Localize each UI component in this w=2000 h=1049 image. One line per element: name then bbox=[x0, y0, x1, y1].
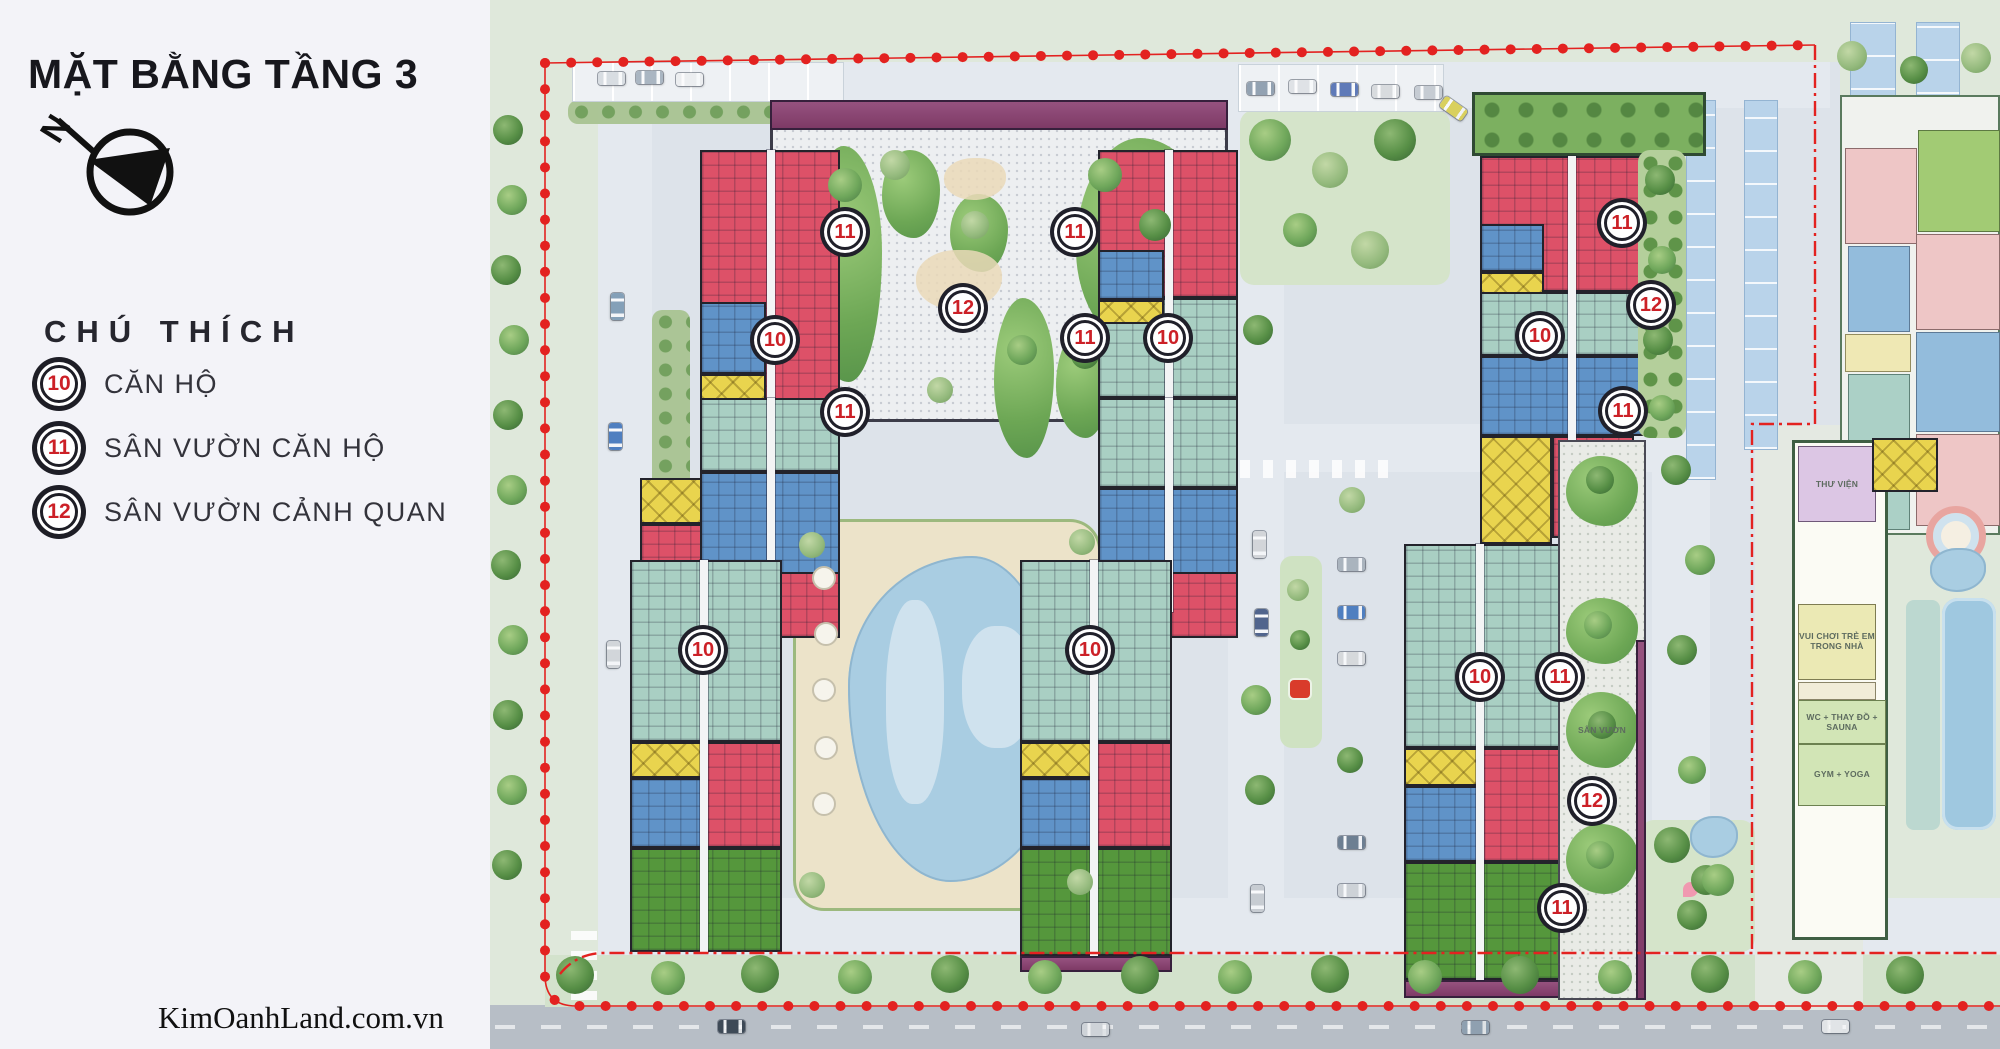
plan-yellow bwall bbox=[1404, 748, 1478, 786]
map-badge-10: 10 bbox=[1462, 659, 1498, 695]
tree bbox=[497, 775, 527, 805]
plan-yellow bwall bbox=[630, 742, 702, 778]
map-badge-11: 11 bbox=[1057, 214, 1093, 250]
plan-gband bbox=[1472, 92, 1706, 156]
legend: 10CĂN HỘ11SÂN VƯỜN CĂN HỘ12SÂN VƯỜN CẢNH… bbox=[30, 352, 447, 544]
car bbox=[611, 293, 624, 320]
plan-yellow bwall bbox=[1872, 438, 1938, 492]
tree bbox=[1678, 756, 1706, 784]
plan-p-yellow bbox=[1845, 334, 1911, 372]
car bbox=[1255, 609, 1268, 636]
tree bbox=[499, 325, 529, 355]
map-badge-10: 10 bbox=[1072, 632, 1108, 668]
car bbox=[1338, 558, 1365, 571]
tree bbox=[1598, 960, 1632, 994]
tree bbox=[1667, 635, 1697, 665]
car bbox=[1289, 80, 1316, 93]
umbrella bbox=[812, 792, 836, 816]
tree bbox=[1312, 152, 1348, 188]
tree bbox=[1007, 335, 1037, 365]
tree bbox=[1961, 43, 1991, 73]
tree bbox=[497, 475, 527, 505]
left-panel: MẶT BẰNG TẦNG 3 N CHÚ THÍCH 10CĂN HỘ11SÂ… bbox=[0, 0, 490, 1049]
tree bbox=[556, 956, 594, 994]
tree bbox=[838, 960, 872, 994]
tree bbox=[1121, 956, 1159, 994]
plan-lappool bbox=[1942, 598, 1996, 830]
tree bbox=[1069, 529, 1095, 555]
tree bbox=[1290, 630, 1310, 650]
tree bbox=[931, 955, 969, 993]
map-badge-11: 11 bbox=[1605, 393, 1641, 429]
tree bbox=[1886, 956, 1924, 994]
plan-bstall bbox=[1686, 100, 1716, 480]
tree bbox=[1643, 325, 1673, 355]
map-badge-11: 11 bbox=[1544, 890, 1580, 926]
tree bbox=[497, 185, 527, 215]
watermark: KimOanhLand.com.vn bbox=[158, 1000, 444, 1036]
map-badge-11: 11 bbox=[1604, 205, 1640, 241]
umbrella bbox=[812, 678, 836, 702]
plan-yellow bwall bbox=[640, 478, 702, 524]
plan-p-green bbox=[1918, 130, 2000, 232]
tree bbox=[1645, 165, 1675, 195]
tree bbox=[1283, 213, 1317, 247]
tree bbox=[1067, 869, 1093, 895]
plan-red bwall bbox=[706, 742, 782, 848]
car bbox=[1247, 82, 1274, 95]
tree bbox=[799, 872, 825, 898]
tree bbox=[961, 211, 989, 239]
tree bbox=[1900, 56, 1928, 84]
car bbox=[1253, 531, 1266, 558]
plan-p-pink bbox=[1916, 234, 2000, 330]
legend-item-label: SÂN VƯỜN CẢNH QUAN bbox=[104, 497, 447, 528]
site-plan-map bbox=[490, 0, 2000, 1049]
map-badge-10: 10 bbox=[1150, 320, 1186, 356]
north-letter: N bbox=[38, 108, 78, 149]
umbrella bbox=[814, 736, 838, 760]
tree bbox=[1661, 455, 1691, 485]
umbrella bbox=[812, 566, 836, 590]
plan-p-blue bbox=[1916, 332, 2000, 432]
tree bbox=[493, 400, 523, 430]
tree bbox=[1584, 611, 1612, 639]
map-badge-12: 12 bbox=[1574, 783, 1610, 819]
tree bbox=[493, 115, 523, 145]
tree bbox=[1654, 827, 1690, 863]
tree bbox=[1339, 487, 1365, 513]
map-badge-11: 11 bbox=[827, 394, 863, 430]
car bbox=[676, 73, 703, 86]
page-title: MẶT BẰNG TẦNG 3 bbox=[28, 51, 418, 98]
tree bbox=[799, 532, 825, 558]
tree bbox=[1311, 955, 1349, 993]
tree bbox=[927, 377, 953, 403]
tree bbox=[741, 955, 779, 993]
tree bbox=[1243, 315, 1273, 345]
plan-slide bbox=[1290, 680, 1310, 698]
plan-corr bbox=[700, 560, 708, 952]
legend-item: 10CĂN HỘ bbox=[30, 352, 447, 416]
car bbox=[1338, 884, 1365, 897]
tree bbox=[1649, 395, 1675, 421]
car bbox=[609, 423, 622, 450]
tree bbox=[1374, 119, 1416, 161]
tree bbox=[491, 550, 521, 580]
legend-item: 12SÂN VƯỜN CẢNH QUAN bbox=[30, 480, 447, 544]
plan-tealdeck bbox=[1906, 600, 1940, 830]
plan-red bwall bbox=[1096, 742, 1172, 848]
map-badge-10: 10 bbox=[757, 322, 793, 358]
umbrella bbox=[814, 622, 838, 646]
car bbox=[1338, 606, 1365, 619]
plan-bstall bbox=[1744, 100, 1778, 450]
map-badge-10: 10 bbox=[1522, 318, 1558, 354]
tree bbox=[1241, 685, 1271, 715]
north-arrow-icon: N bbox=[38, 100, 208, 230]
plan-blue bwall bbox=[1020, 778, 1092, 848]
map-badge-11: 11 bbox=[1067, 320, 1103, 356]
car bbox=[1462, 1021, 1489, 1034]
legend-badge: 11 bbox=[40, 429, 78, 467]
room-label: WC + THAY ĐỒ + SAUNA bbox=[1804, 712, 1880, 732]
tree bbox=[1245, 775, 1275, 805]
tree bbox=[1586, 466, 1614, 494]
tree bbox=[1685, 545, 1715, 575]
car bbox=[1372, 85, 1399, 98]
car bbox=[598, 72, 625, 85]
car bbox=[636, 71, 663, 84]
tree bbox=[1028, 960, 1062, 994]
tree bbox=[1586, 841, 1614, 869]
plan-yellow bwall bbox=[1480, 272, 1544, 294]
floor-plan-page: MẶT BẰNG TẦNG 3 N CHÚ THÍCH 10CĂN HỘ11SÂ… bbox=[0, 0, 2000, 1049]
plan-gblob bbox=[994, 298, 1054, 458]
plan-yellow bwall bbox=[1098, 300, 1164, 324]
plan-pband bbox=[770, 100, 1228, 130]
room-label: SÂN VƯỜN bbox=[1564, 725, 1640, 735]
plan-p-blue bbox=[1848, 246, 1910, 332]
car bbox=[1251, 885, 1264, 912]
plan-corr bbox=[1476, 544, 1484, 980]
plan-corr bbox=[1090, 560, 1098, 956]
tree bbox=[1788, 960, 1822, 994]
car bbox=[607, 641, 620, 668]
tree bbox=[1088, 158, 1122, 192]
plan-corr bbox=[767, 150, 775, 402]
legend-item-label: CĂN HỘ bbox=[104, 369, 218, 400]
plan-red bwall bbox=[1482, 748, 1560, 862]
car bbox=[1338, 836, 1365, 849]
tree bbox=[1648, 246, 1676, 274]
plan-blue bwall bbox=[630, 778, 702, 848]
room-label: THƯ VIỆN bbox=[1799, 479, 1875, 489]
room-label: GYM + YOGA bbox=[1804, 769, 1880, 779]
tree bbox=[493, 700, 523, 730]
tree bbox=[1351, 231, 1389, 269]
tree bbox=[498, 625, 528, 655]
tree bbox=[1691, 955, 1729, 993]
plan-yellow bwall bbox=[1020, 742, 1092, 778]
tree bbox=[1218, 960, 1252, 994]
tree bbox=[651, 961, 685, 995]
legend-badge: 12 bbox=[40, 493, 78, 531]
plan-yellow bwall bbox=[1480, 436, 1552, 544]
car bbox=[1822, 1020, 1849, 1033]
car bbox=[1415, 86, 1442, 99]
tree bbox=[1501, 956, 1539, 994]
car bbox=[1331, 83, 1358, 96]
car bbox=[718, 1020, 745, 1033]
plan-pool-light bbox=[886, 600, 944, 804]
tree bbox=[1139, 209, 1171, 241]
plan-p-pink bbox=[1845, 148, 1917, 244]
plan-zebra-h bbox=[1240, 460, 1388, 478]
tree bbox=[828, 168, 862, 202]
plan-blue bwall bbox=[1404, 786, 1478, 862]
map-badge-11: 11 bbox=[827, 214, 863, 250]
tree bbox=[880, 150, 910, 180]
car bbox=[1338, 652, 1365, 665]
tree bbox=[491, 255, 521, 285]
room-label: VUI CHƠI TRẺ EM TRONG NHÀ bbox=[1799, 631, 1875, 651]
map-badge-12: 12 bbox=[945, 290, 981, 326]
tree bbox=[1408, 960, 1442, 994]
car bbox=[1082, 1023, 1109, 1036]
map-badge-11: 11 bbox=[1542, 659, 1578, 695]
plan-r-cream bbox=[1798, 682, 1876, 700]
map-badge-10: 10 bbox=[685, 632, 721, 668]
map-badge-12: 12 bbox=[1633, 287, 1669, 323]
tree bbox=[1677, 900, 1707, 930]
plan-blue bwall bbox=[1098, 250, 1164, 300]
plan-blue bwall bbox=[1480, 224, 1544, 272]
plan-pond bbox=[1930, 548, 1986, 592]
legend-item-label: SÂN VƯỜN CĂN HỘ bbox=[104, 433, 386, 464]
plan-corr bbox=[1165, 150, 1173, 398]
legend-badge: 10 bbox=[40, 365, 78, 403]
tree bbox=[492, 850, 522, 880]
plan-pband bbox=[1636, 640, 1646, 1000]
plan-red bwall bbox=[1170, 572, 1238, 638]
tree bbox=[1837, 41, 1867, 71]
plan-yellow bwall bbox=[700, 374, 766, 400]
legend-heading: CHÚ THÍCH bbox=[44, 314, 305, 350]
tree bbox=[1287, 579, 1309, 601]
legend-item: 11SÂN VƯỜN CĂN HỘ bbox=[30, 416, 447, 480]
tree bbox=[1337, 747, 1363, 773]
tree bbox=[1249, 119, 1291, 161]
tree bbox=[1702, 864, 1734, 896]
